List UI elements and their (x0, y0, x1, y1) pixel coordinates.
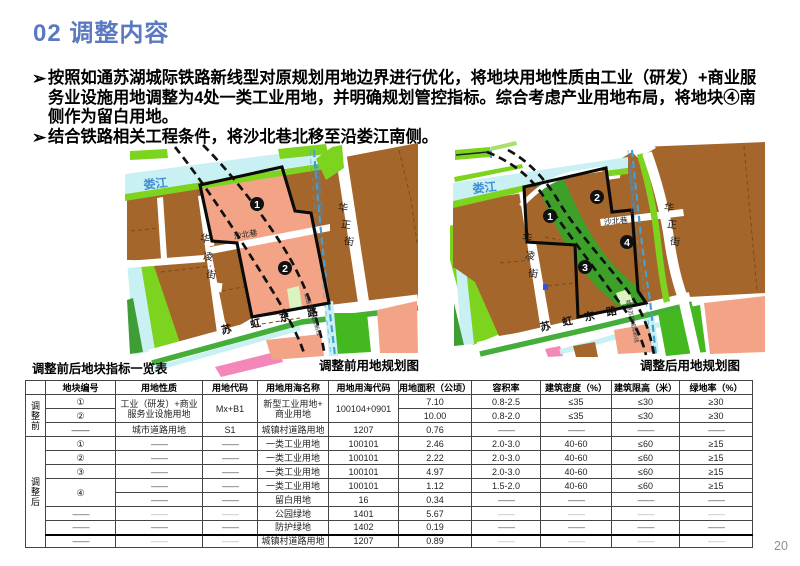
svg-text:2: 2 (594, 192, 600, 204)
svg-text:3: 3 (582, 262, 588, 274)
svg-text:正: 正 (666, 219, 677, 231)
svg-text:虹: 虹 (249, 316, 262, 331)
svg-text:4: 4 (624, 237, 630, 249)
svg-text:娄江: 娄江 (143, 175, 168, 192)
svg-text:2: 2 (282, 263, 288, 275)
svg-text:1: 1 (547, 211, 553, 223)
svg-text:正: 正 (340, 219, 351, 231)
svg-text:1: 1 (254, 199, 260, 211)
svg-text:娄江: 娄江 (472, 179, 497, 196)
